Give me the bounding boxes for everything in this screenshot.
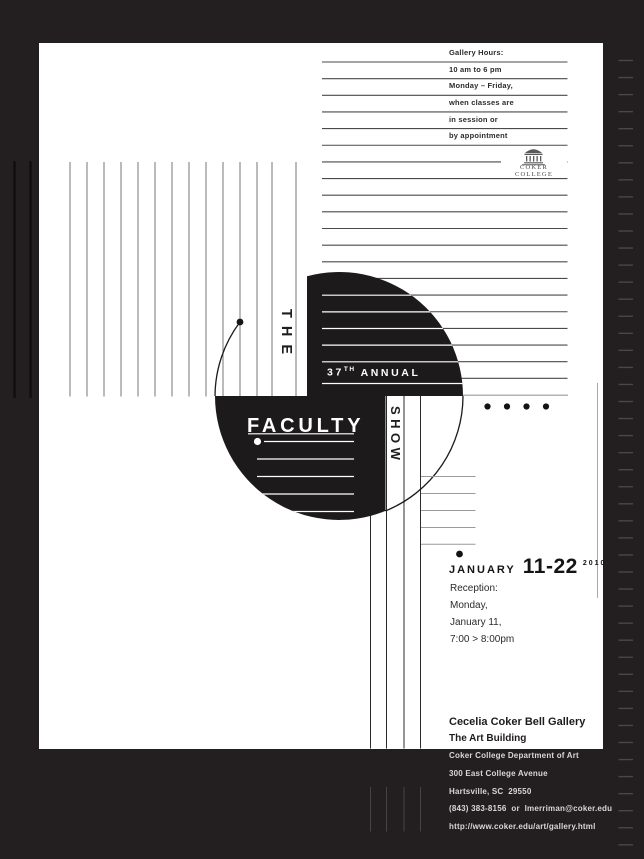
- coker-college-wordmark: COKER COLLEGE: [501, 164, 567, 178]
- annual-number: 37: [327, 367, 344, 379]
- title-annual: 37THANNUAL: [327, 366, 421, 379]
- venue-building: The Art Building: [449, 733, 526, 744]
- gallery-hours-text: Gallery Hours: 10 am to 6 pm Monday – Fr…: [449, 45, 514, 145]
- date-year: 2010: [583, 560, 607, 567]
- title-show: SHOW: [388, 406, 403, 464]
- annual-word: ANNUAL: [361, 367, 421, 379]
- poster: Gallery Hours: 10 am to 6 pm Monday – Fr…: [0, 0, 644, 859]
- annual-ordinal: TH: [344, 366, 356, 373]
- venue-name: Cecelia Coker Bell Gallery: [449, 716, 585, 728]
- date-days: 11-22: [523, 555, 578, 579]
- title-faculty: FACULTY: [247, 415, 364, 438]
- exhibit-dates: JANUARY 11-22 2010: [449, 555, 606, 579]
- date-month: JANUARY: [449, 564, 516, 576]
- reception-details: Reception: Monday, January 11, 7:00 > 8:…: [450, 580, 514, 648]
- title-the: THE: [278, 309, 294, 362]
- contact-footer: Coker College Department of Art 300 East…: [449, 747, 612, 836]
